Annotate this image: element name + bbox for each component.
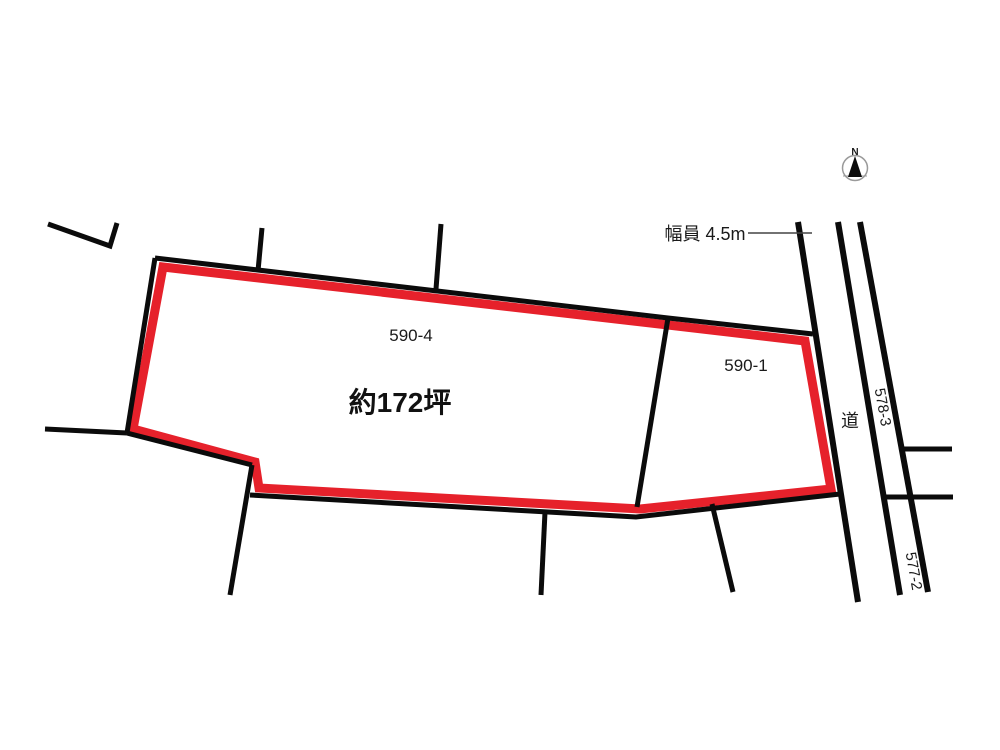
plot-notch-diagonal bbox=[127, 433, 252, 465]
north-arrow: N bbox=[843, 147, 868, 181]
left-extension-line bbox=[45, 429, 127, 433]
north-arrow-pointer bbox=[848, 156, 862, 177]
top-tick-line-left bbox=[258, 228, 262, 271]
notch-extension-line bbox=[230, 465, 252, 595]
neighbor-corner-line bbox=[48, 223, 117, 246]
parcel-590-4-label: 590-4 bbox=[389, 326, 432, 345]
parcel-divider-line bbox=[637, 318, 668, 507]
top-tick-line-middle bbox=[436, 224, 441, 289]
road-label: 道 bbox=[841, 411, 859, 431]
bottom-extension-line-left bbox=[541, 512, 545, 595]
highlighted-parcel-outline bbox=[133, 267, 831, 509]
plot-top-edge bbox=[155, 258, 813, 334]
bottom-extension-line-right bbox=[712, 504, 733, 592]
area-label: 約172坪 bbox=[349, 386, 452, 418]
road-width-label: 幅員 4.5m bbox=[664, 224, 745, 244]
parcel-590-1-label: 590-1 bbox=[724, 356, 767, 375]
land-plot-diagram: N 幅員 4.5m 590-4 590-1 約172坪 道 578-3 577-… bbox=[0, 0, 1000, 750]
plot-map-canvas: N 幅員 4.5m 590-4 590-1 約172坪 道 578-3 577-… bbox=[0, 0, 1000, 750]
